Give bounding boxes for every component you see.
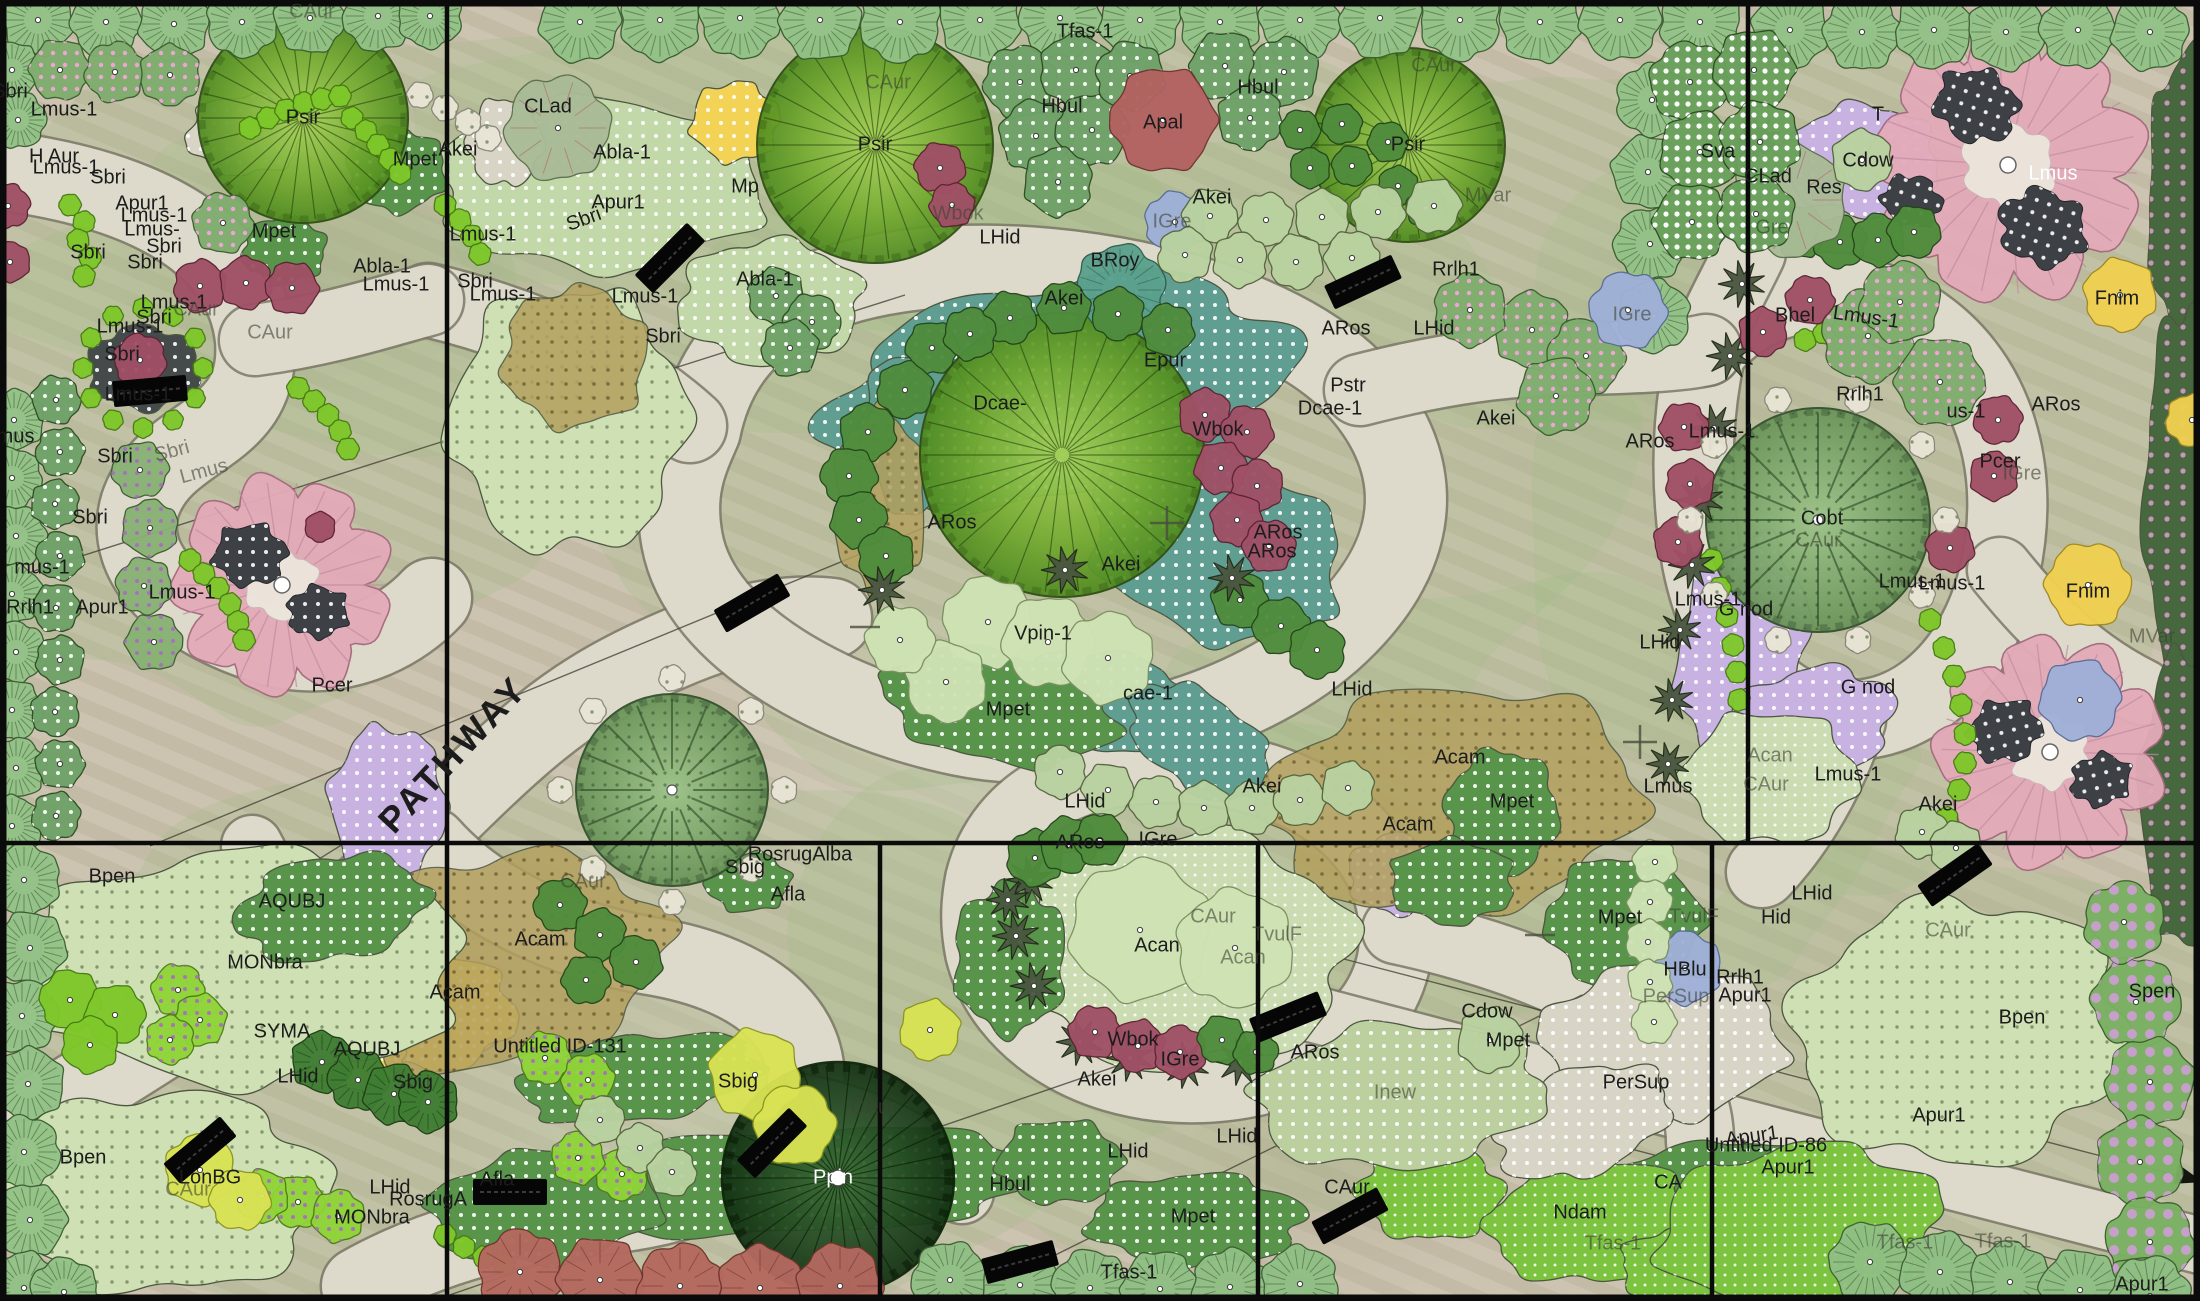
center-dot bbox=[597, 932, 602, 937]
plant-symbol bbox=[406, 82, 433, 108]
center-dot bbox=[1375, 209, 1380, 214]
center-dot bbox=[141, 583, 146, 588]
center-dot bbox=[57, 67, 62, 72]
center-dot bbox=[9, 707, 14, 712]
plant-code-label: Lmus-1 bbox=[1689, 420, 1756, 442]
plant-code-label: Tfas-1 bbox=[1585, 1232, 1642, 1254]
center-dot bbox=[902, 387, 907, 392]
plant-code-label: Bpen bbox=[60, 1146, 107, 1168]
canopy bbox=[185, 328, 206, 348]
plant-symbol bbox=[81, 388, 102, 408]
plant-code-label: Bhel bbox=[1775, 304, 1815, 326]
plant-code-label: LHid bbox=[1639, 631, 1680, 653]
center-dot bbox=[667, 785, 677, 795]
plant-code-label: Rrlh1 bbox=[6, 596, 54, 618]
center-dot bbox=[1073, 67, 1078, 72]
plant-code-label: LHid bbox=[979, 226, 1020, 248]
center-dot bbox=[947, 1277, 952, 1282]
center-dot bbox=[27, 945, 32, 950]
center-dot bbox=[637, 1145, 642, 1150]
plant-code-label: Mpet bbox=[986, 698, 1031, 720]
center-dot bbox=[167, 1037, 172, 1042]
center-dot bbox=[555, 125, 560, 130]
center-dot bbox=[2147, 1079, 2152, 1084]
canopy bbox=[305, 511, 334, 542]
plant-symbol bbox=[185, 328, 206, 348]
center-dot bbox=[1875, 237, 1880, 242]
center-dot bbox=[1991, 473, 1996, 478]
plant-symbol bbox=[399, 0, 461, 50]
center-dot bbox=[1553, 393, 1558, 398]
center-dot bbox=[52, 501, 57, 506]
center-dot bbox=[1237, 597, 1242, 602]
plant-symbol bbox=[233, 629, 256, 651]
center-dot bbox=[977, 17, 982, 22]
center-dot bbox=[61, 1289, 66, 1294]
center-dot bbox=[575, 1155, 580, 1160]
center-dot bbox=[1760, 329, 1765, 334]
canopy bbox=[1954, 752, 1977, 774]
center-dot bbox=[1947, 545, 1952, 550]
center-dot bbox=[773, 293, 778, 298]
plant-symbol bbox=[579, 698, 606, 723]
plant-code-label: Mpet bbox=[1486, 1029, 1531, 1051]
center-dot bbox=[1645, 939, 1650, 944]
center-dot bbox=[846, 473, 851, 478]
plant-code-label: Psir bbox=[1391, 133, 1426, 155]
center-dot bbox=[585, 1077, 590, 1082]
center-dot bbox=[883, 553, 888, 558]
plant-code-label: CAur bbox=[850, 1096, 896, 1118]
plant-code-label: Apur1 bbox=[75, 596, 128, 618]
center-dot bbox=[9, 475, 14, 480]
center-dot bbox=[1314, 647, 1319, 652]
plant-symbol bbox=[103, 410, 123, 430]
center-dot bbox=[1234, 517, 1239, 522]
center-dot bbox=[1105, 655, 1110, 660]
plant-symbol bbox=[1954, 752, 1977, 774]
plant-code-label: CAur bbox=[247, 321, 293, 343]
plant-code-label: LHid bbox=[1107, 1140, 1148, 1162]
plant-symbol bbox=[1765, 387, 1792, 412]
plant-code-label: Apur1 bbox=[1761, 1156, 1814, 1178]
center-dot bbox=[927, 1027, 932, 1032]
plant-code-label: Abla-1 bbox=[736, 268, 794, 290]
plant-code-label: Apal bbox=[1143, 111, 1183, 133]
center-dot bbox=[1222, 63, 1227, 68]
plant-code-label: Sbri bbox=[97, 445, 133, 467]
center-dot bbox=[1201, 805, 1206, 810]
center-dot bbox=[1687, 79, 1692, 84]
center-dot bbox=[57, 657, 62, 662]
plant-code-label: Mpet bbox=[1171, 1205, 1216, 1227]
center-dot bbox=[1281, 69, 1286, 74]
canopy bbox=[1726, 661, 1749, 682]
center-dot bbox=[67, 997, 72, 1002]
center-dot bbox=[1089, 127, 1094, 132]
center-dot bbox=[929, 345, 934, 350]
center-dot bbox=[197, 1017, 202, 1022]
plant-code-label: CAur bbox=[1743, 773, 1789, 795]
plant-symbol bbox=[1726, 661, 1749, 682]
plant-code-label: Acam bbox=[1434, 746, 1485, 768]
plant-code-label: ARos bbox=[928, 511, 977, 533]
plant-code-label: Inew bbox=[1374, 1081, 1417, 1103]
center-dot bbox=[985, 619, 990, 624]
center-dot bbox=[1647, 979, 1652, 984]
center-dot bbox=[19, 1013, 24, 1018]
center-dot bbox=[1207, 213, 1212, 218]
canopy bbox=[103, 410, 123, 430]
plant-symbol bbox=[73, 265, 95, 287]
plant-code-label: Apur1 bbox=[2115, 1273, 2168, 1295]
center-dot bbox=[1137, 17, 1142, 22]
center-dot bbox=[27, 1217, 32, 1222]
center-dot bbox=[1647, 241, 1652, 246]
center-dot bbox=[1697, 19, 1702, 24]
center-dot bbox=[1751, 67, 1756, 72]
plant-code-label: Akei bbox=[1193, 186, 1232, 208]
center-dot bbox=[137, 467, 142, 472]
center-dot bbox=[1529, 327, 1534, 332]
canopy bbox=[193, 358, 213, 379]
center-dot bbox=[1651, 1019, 1656, 1024]
plant-code-label: Hbul bbox=[1237, 76, 1278, 98]
center-dot bbox=[577, 19, 582, 24]
plant-symbol bbox=[329, 85, 352, 107]
plant-code-label: LHid bbox=[1413, 317, 1454, 339]
center-dot bbox=[1689, 562, 1694, 567]
center-dot bbox=[1953, 845, 1958, 850]
center-dot bbox=[13, 765, 18, 770]
center-dot bbox=[243, 280, 248, 285]
center-dot bbox=[167, 72, 172, 77]
plant-code-label: CLad bbox=[1744, 165, 1792, 187]
center-dot bbox=[1395, 183, 1400, 188]
canopy bbox=[1722, 634, 1744, 657]
center-dot bbox=[1297, 1281, 1302, 1286]
plant-code-label: Mpet bbox=[1490, 790, 1535, 812]
plant-code-label: Bpen bbox=[89, 865, 136, 887]
center-dot bbox=[1649, 97, 1654, 102]
center-dot bbox=[1867, 1259, 1872, 1264]
plant-code-label: IGre bbox=[1139, 828, 1178, 850]
center-dot bbox=[517, 1269, 522, 1274]
canopy bbox=[233, 629, 256, 651]
center-dot bbox=[757, 1285, 762, 1290]
center-dot bbox=[1617, 17, 1622, 22]
center-dot bbox=[1645, 169, 1650, 174]
plant-code-label: PerSup bbox=[1643, 985, 1710, 1007]
center-dot bbox=[1247, 115, 1252, 120]
center-dot bbox=[103, 19, 108, 24]
canopy bbox=[73, 265, 95, 287]
center-dot bbox=[237, 1197, 242, 1202]
center-dot bbox=[1339, 121, 1344, 126]
plant-code-label: Lmus bbox=[1644, 775, 1693, 797]
plant-code-label: Acam bbox=[1382, 813, 1433, 835]
center-dot bbox=[1837, 239, 1842, 244]
center-dot bbox=[1005, 897, 1010, 902]
center-dot bbox=[427, 13, 432, 18]
plant-symbol bbox=[1499, 0, 1582, 64]
center-dot bbox=[9, 823, 14, 828]
center-dot bbox=[1689, 219, 1694, 224]
plant-code-label: Mpet bbox=[252, 220, 297, 242]
plant-code-label: Hbul bbox=[989, 1173, 1030, 1195]
plant-symbol bbox=[31, 687, 79, 737]
center-dot bbox=[425, 1099, 430, 1104]
plant-code-label: CAur bbox=[165, 1178, 211, 1200]
flower-center-dot bbox=[274, 577, 290, 593]
canopy bbox=[469, 243, 491, 266]
canopy bbox=[1954, 723, 1976, 746]
plant-code-label: CAur bbox=[1411, 54, 1457, 76]
canopy bbox=[329, 85, 352, 107]
plant-code-label: CAur bbox=[1925, 919, 1971, 941]
center-dot bbox=[557, 902, 562, 907]
plant-symbol bbox=[1909, 432, 1934, 459]
plant-symbol bbox=[1338, 0, 1422, 58]
plant-code-label: Mpet bbox=[393, 148, 438, 170]
plant-code-label: Pstr bbox=[1330, 374, 1366, 396]
plant-code-label: Akei bbox=[1078, 1068, 1117, 1090]
plant-symbol bbox=[1578, 0, 1662, 60]
center-dot bbox=[943, 679, 948, 684]
center-dot bbox=[1647, 899, 1652, 904]
center-dot bbox=[1377, 15, 1382, 20]
plant-code-label: G nod bbox=[1841, 676, 1895, 698]
plant-symbol bbox=[1919, 609, 1941, 632]
canopy bbox=[185, 388, 206, 408]
canopy bbox=[81, 388, 102, 408]
center-dot bbox=[1669, 697, 1674, 702]
plant-code-label: Sbig bbox=[718, 1070, 758, 1092]
center-dot bbox=[1031, 983, 1036, 988]
center-dot bbox=[1297, 17, 1302, 22]
plant-code-label: Untitled ID-86 bbox=[1705, 1134, 1827, 1156]
plant-symbol bbox=[659, 889, 686, 914]
center-dot bbox=[1227, 1284, 1232, 1289]
plant-code-label: Bpen bbox=[1999, 1006, 2046, 1028]
plant-code-label: Fnim bbox=[2066, 580, 2110, 602]
plant-code-label: CAur bbox=[1795, 529, 1841, 551]
plant-code-label: Psir bbox=[858, 133, 893, 155]
plant-code-label: Acan bbox=[1747, 744, 1793, 766]
center-dot bbox=[2147, 1239, 2152, 1244]
plant-code-label: TvulF bbox=[1252, 923, 1302, 945]
plant-symbol bbox=[475, 125, 501, 151]
plant-code-label: mus-1 bbox=[14, 556, 70, 578]
plant-symbol bbox=[185, 388, 206, 408]
plant-symbol bbox=[1943, 665, 1966, 686]
center-dot bbox=[151, 639, 156, 644]
plant-code-label: LHid bbox=[1331, 678, 1372, 700]
canopy bbox=[1499, 0, 1582, 64]
center-dot bbox=[1865, 333, 1870, 338]
center-dot bbox=[1345, 785, 1350, 790]
plant-code-label: Sbri bbox=[0, 80, 28, 102]
plant-code-label: Tfas-1 bbox=[1057, 20, 1114, 42]
plant-code-label: Lmus-1 bbox=[1919, 572, 1986, 594]
plant-code-label: LHid bbox=[1064, 790, 1105, 812]
center-dot bbox=[57, 449, 62, 454]
plant-code-label: Dcae- bbox=[973, 392, 1026, 414]
plant-code-label: CAur bbox=[289, 0, 335, 22]
plant-code-label: Akei bbox=[1045, 287, 1084, 309]
center-dot bbox=[355, 1077, 360, 1082]
center-dot bbox=[1652, 859, 1657, 864]
plant-code-label: Cdow bbox=[1842, 149, 1894, 171]
center-dot bbox=[677, 1283, 682, 1288]
plan-canvas: SbriLmus-1H AurLmus-1SbriApur1Lmus-1Lmus… bbox=[0, 0, 2200, 1301]
center-dot bbox=[2121, 919, 2126, 924]
plant-code-label: G nod bbox=[1719, 598, 1773, 620]
center-dot bbox=[1787, 27, 1792, 32]
plant-code-label: Abla-1 bbox=[593, 141, 651, 163]
center-dot bbox=[1349, 163, 1354, 168]
plant-code-label: Rrlh1 bbox=[1432, 258, 1480, 280]
plant-code-label: Akei bbox=[439, 138, 478, 160]
plant-code-label: ARos bbox=[1626, 430, 1675, 452]
plant-code-label: CA bbox=[1654, 1171, 1682, 1193]
center-dot bbox=[1115, 311, 1120, 316]
center-dot bbox=[2147, 29, 2152, 34]
plant-symbol bbox=[1950, 694, 1972, 716]
plant-code-label: AQUBJ bbox=[259, 890, 326, 912]
center-dot bbox=[817, 17, 822, 22]
plant-code-label: Sbri bbox=[645, 325, 681, 347]
center-dot bbox=[619, 1171, 624, 1176]
center-dot bbox=[1919, 829, 1924, 834]
center-dot bbox=[1467, 307, 1472, 312]
center-dot bbox=[175, 987, 180, 992]
center-dot bbox=[1153, 799, 1158, 804]
center-dot bbox=[35, 17, 40, 22]
plant-code-label: Cdow bbox=[1461, 1000, 1513, 1022]
center-dot bbox=[147, 525, 152, 530]
plant-code-label: Fnim bbox=[2095, 287, 2139, 309]
center-dot bbox=[171, 21, 176, 26]
center-dot bbox=[1244, 429, 1249, 434]
center-dot bbox=[1017, 1282, 1022, 1287]
plant-code-label: ARos bbox=[2032, 393, 2081, 415]
plant-code-label: Lmus-1 bbox=[149, 581, 216, 603]
center-dot bbox=[2137, 1159, 2142, 1164]
plant-code-label: Tfas-1 bbox=[1877, 1231, 1934, 1253]
center-dot bbox=[1032, 855, 1037, 860]
center-dot bbox=[1278, 623, 1283, 628]
center-dot bbox=[1218, 465, 1223, 470]
plant-code-label: Acan bbox=[1220, 946, 1266, 968]
center-dot bbox=[1165, 327, 1170, 332]
center-dot bbox=[1807, 297, 1812, 302]
plant-code-label: Lmus-1 bbox=[31, 98, 98, 120]
center-dot bbox=[669, 1169, 674, 1174]
center-dot bbox=[967, 331, 972, 336]
plant-code-label: cae-1 bbox=[1123, 682, 1173, 704]
center-dot bbox=[1687, 481, 1692, 486]
plant-code-label: Lmus-1 bbox=[105, 383, 172, 405]
plant-code-label: ARos bbox=[1248, 540, 1297, 562]
center-dot bbox=[1757, 139, 1762, 144]
plant-code-label: Hbul bbox=[1041, 95, 1082, 117]
plant-symbol bbox=[73, 358, 93, 379]
canopy bbox=[337, 438, 360, 460]
center-dot bbox=[809, 319, 814, 324]
center-dot bbox=[2075, 27, 2080, 32]
plant-code-label: Untitled ID-131 bbox=[493, 1035, 626, 1057]
plant-code-label: LHid bbox=[277, 1065, 318, 1087]
center-dot bbox=[1055, 179, 1060, 184]
center-dot bbox=[15, 117, 20, 122]
center-dot bbox=[1105, 787, 1110, 792]
plant-symbol bbox=[1933, 637, 1955, 660]
center-dot bbox=[633, 959, 638, 964]
plant-code-label: Sbri bbox=[70, 241, 106, 263]
plant-symbol bbox=[1291, 148, 1330, 189]
plant-code-label: Lmus-1 bbox=[1815, 763, 1882, 785]
center-dot bbox=[1931, 27, 1936, 32]
plant-code-label: Sva bbox=[1701, 140, 1736, 162]
center-dot bbox=[9, 67, 14, 72]
plant-code-label: TvulF bbox=[1669, 905, 1719, 927]
canopy bbox=[1933, 637, 1955, 660]
plant-code-label: Wbok bbox=[932, 202, 984, 224]
plant-code-label: PerSup bbox=[1603, 1071, 1670, 1093]
plant-code-label: Acan bbox=[1134, 934, 1180, 956]
plant-symbol bbox=[1722, 634, 1744, 657]
plant-symbol bbox=[738, 697, 763, 724]
plant-code-label: MVar bbox=[2129, 625, 2176, 647]
center-dot bbox=[1995, 417, 2000, 422]
plant-symbol bbox=[547, 777, 573, 804]
plant-code-label: Apur1 bbox=[1912, 1104, 1965, 1126]
plant-code-label: ARos bbox=[1291, 1041, 1340, 1063]
center-dot bbox=[87, 1042, 92, 1047]
plant-code-label: Res bbox=[1806, 176, 1842, 198]
center-dot bbox=[1254, 483, 1259, 488]
center-dot bbox=[1182, 252, 1187, 257]
center-dot bbox=[197, 283, 202, 288]
plant-code-label: Lmus-1 bbox=[612, 285, 679, 307]
plant-code-label: Gre bbox=[1755, 216, 1788, 238]
plant-code-label: CAur bbox=[865, 71, 911, 93]
center-dot bbox=[1583, 353, 1588, 358]
plant-code-label: ARos bbox=[1322, 317, 1371, 339]
plant-code-label: Sbri bbox=[72, 506, 108, 528]
plant-code-label: Ppin bbox=[813, 1166, 853, 1188]
plant-code-label: Lmus-1 bbox=[450, 223, 517, 245]
plant-symbol bbox=[35, 740, 86, 788]
center-dot bbox=[1911, 229, 1916, 234]
center-dot bbox=[375, 13, 380, 18]
center-dot bbox=[1739, 281, 1744, 286]
center-dot bbox=[289, 285, 294, 290]
center-dot bbox=[1217, 19, 1222, 24]
plant-code-label: AQUBJ bbox=[334, 1038, 401, 1060]
plant-code-label: Lmus-1 bbox=[470, 283, 537, 305]
plant-code-label: BRoy bbox=[1091, 249, 1140, 271]
plant-code-label: Sbig bbox=[393, 1071, 433, 1093]
plant-code-label: Ndam bbox=[1553, 1201, 1606, 1223]
plant-symbol bbox=[453, 1236, 475, 1259]
plant-symbol bbox=[469, 243, 491, 266]
center-dot bbox=[1237, 257, 1242, 262]
center-dot bbox=[1681, 424, 1686, 429]
center-dot bbox=[1349, 255, 1354, 260]
plant-code-label: Lmus bbox=[2029, 162, 2078, 184]
